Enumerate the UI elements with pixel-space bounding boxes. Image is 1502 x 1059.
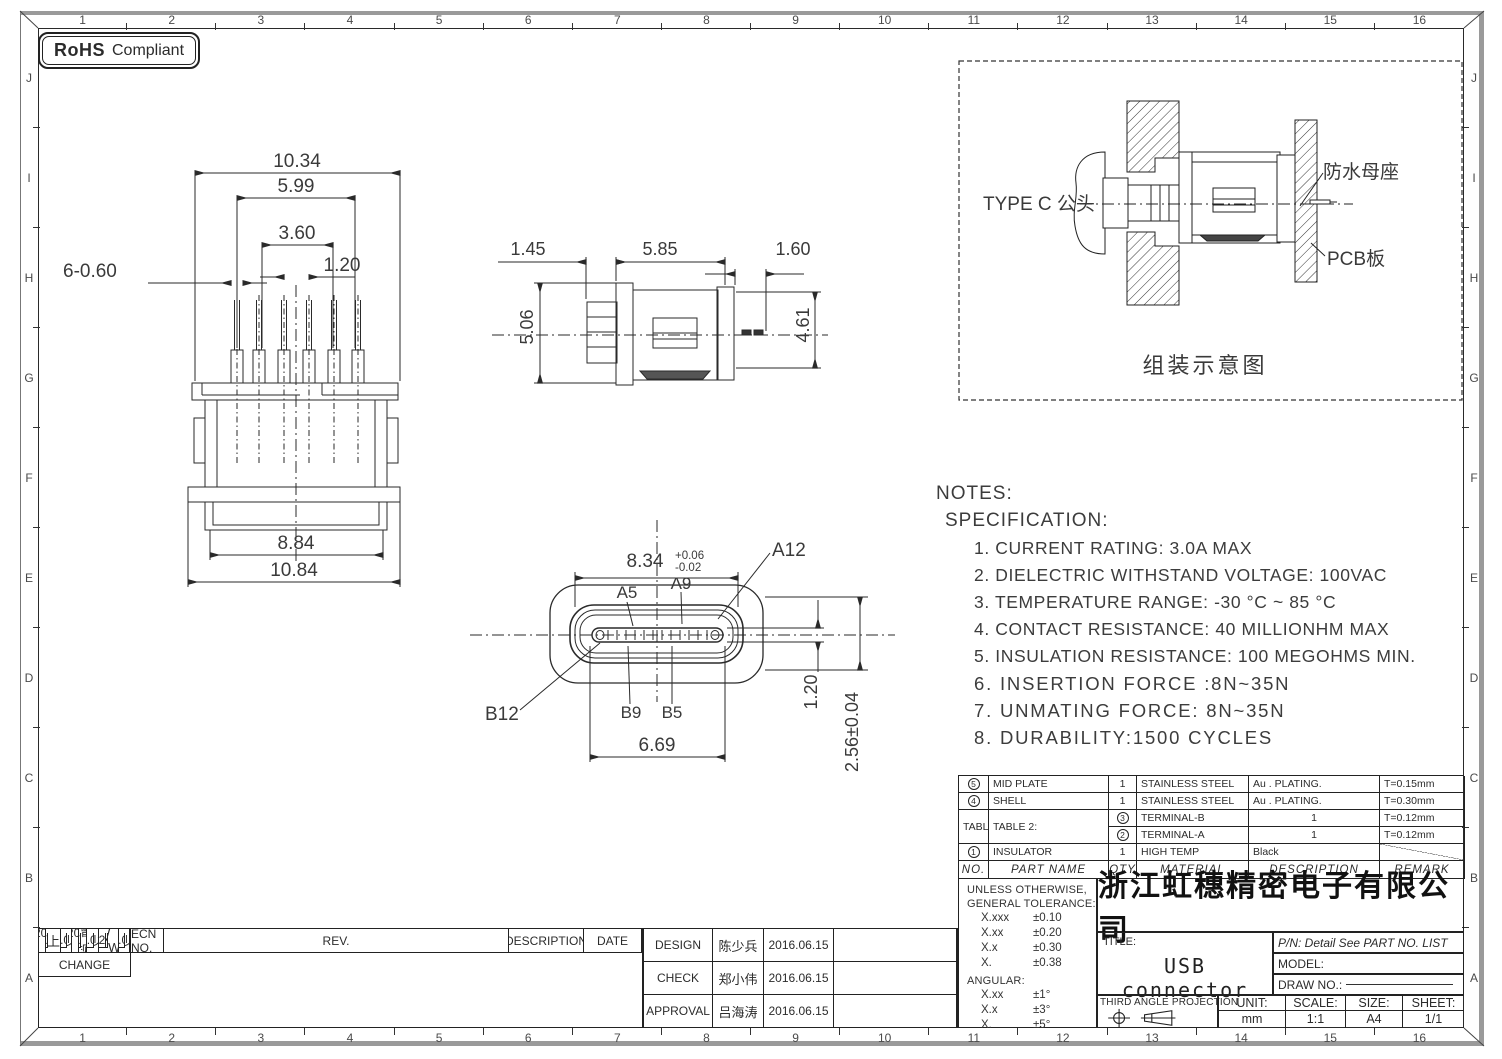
- ruler-number: 1: [38, 12, 127, 28]
- ruler-letter: E: [1464, 528, 1484, 628]
- part-name: TERMINAL-B: [1137, 810, 1249, 827]
- part-no: 3: [1109, 810, 1137, 827]
- part-material-merged: TABLE 2:: [959, 810, 989, 844]
- dim-side-height: 5.06: [517, 309, 537, 344]
- tolerance-row: X.x±0.30: [967, 942, 1096, 957]
- size-cell: SIZE: A4: [1345, 995, 1402, 1028]
- ruler-number: 6: [484, 1030, 573, 1046]
- ruler-number: 2: [127, 1030, 216, 1046]
- compliant-label: Compliant: [112, 42, 184, 60]
- parts-header-name: PART NAME: [989, 861, 1109, 879]
- part-remark: T=0.15mm: [1380, 776, 1465, 793]
- approval-date: 2016.06.15: [764, 995, 834, 1028]
- ruler-letter: H: [20, 228, 38, 328]
- rohs-badge: RoHS Compliant: [38, 32, 200, 69]
- tolerance-row: X.xxx±0.10: [967, 912, 1096, 927]
- projection-cell: THIRD ANGLE PROJECTION: [1097, 995, 1218, 1028]
- size-value: A4: [1346, 1011, 1402, 1027]
- ruler-number: 1: [38, 1030, 127, 1046]
- border-ruler-left: JIHGFEDCBA: [20, 28, 38, 1028]
- part-description: Black: [1249, 844, 1380, 861]
- drawing-sheet: 12345678910111213141516 1234567891011121…: [0, 0, 1502, 1059]
- dim-front-pitch: 1.20: [324, 255, 361, 276]
- tolerance-block: UNLESS OTHERWISE, GENERAL TOLERANCE: X.x…: [958, 878, 1097, 1028]
- ruler-number: 14: [1197, 12, 1286, 28]
- approval-empty-cell: [834, 929, 957, 962]
- dim-front-inner-span: 3.60: [279, 223, 316, 244]
- ruler-number: 9: [751, 12, 840, 28]
- dim-side-flange: 1.45: [510, 239, 545, 259]
- ruler-letter: F: [20, 428, 38, 528]
- approval-name: 郑小伟: [713, 962, 764, 995]
- tolerance-heading: GENERAL TOLERANCE:: [967, 898, 1096, 912]
- dim-side-tail: 1.60: [775, 239, 810, 259]
- approval-role: CHECK: [644, 962, 713, 995]
- ruler-number: 5: [395, 12, 484, 28]
- ruler-letter: H: [1464, 228, 1484, 328]
- ruler-number: 15: [1286, 12, 1375, 28]
- revision-ecn: JH2016-071: [72, 929, 79, 953]
- border-ruler-bottom: 12345678910111213141516: [38, 1030, 1464, 1046]
- ruler-number: 6: [484, 12, 573, 28]
- dim-face-width: 8.34: [627, 551, 664, 572]
- part-number-cell: P/N: Detail See PART NO. LIST: [1273, 932, 1464, 953]
- company-name: 浙江虹穗精密电子有限公司: [1097, 878, 1464, 932]
- ruler-number: 16: [1375, 12, 1464, 28]
- revision-header-ecn: ECN NO.: [131, 929, 164, 953]
- revision-header-rev: REV.: [164, 929, 509, 953]
- model-cell: MODEL:: [1273, 953, 1464, 974]
- part-remark: T=0.30mm: [1380, 793, 1465, 810]
- revision-ecn: JH2016-080: [39, 929, 46, 953]
- part-no: 5: [959, 776, 989, 793]
- part-qty: 1: [1249, 827, 1380, 844]
- approval-role: APPROVAL: [644, 995, 713, 1028]
- draw-no-blank-line: [1346, 984, 1453, 985]
- assembly-caption: 组装示意图: [1142, 353, 1267, 378]
- ruler-number: 5: [395, 1030, 484, 1046]
- draw-no-label: DRAW NO.:: [1278, 978, 1342, 992]
- ruler-number: 8: [662, 12, 751, 28]
- part-qty: 1: [1109, 793, 1137, 810]
- ruler-number: 4: [305, 1030, 394, 1046]
- ruler-letter: G: [20, 328, 38, 428]
- note-line: 2. DIELECTRIC WITHSTAND VOLTAGE: 100VAC: [936, 565, 1466, 592]
- sheet-cell: SHEET: 1/1: [1402, 995, 1464, 1028]
- part-description: Au . PLATING.: [1249, 776, 1380, 793]
- projection-label: THIRD ANGLE PROJECTION: [1100, 997, 1215, 1008]
- ruler-letter: C: [20, 728, 38, 828]
- face-view: 8.34 +0.06 -0.02 6.69 1.20 2.56±0.04 A5 …: [450, 512, 920, 812]
- ruler-number: 13: [1108, 12, 1197, 28]
- revision-description: NEW DRAWING: [108, 929, 119, 953]
- part-name: TERMINAL-A: [1137, 827, 1249, 844]
- side-view: 1.45 5.85 1.60 5.06 4.61: [490, 225, 830, 410]
- border-ruler-right: JIHGFEDCBA: [1464, 28, 1484, 1028]
- part-remark-slash: [1380, 844, 1465, 861]
- title-cell: TITLE: USB connector: [1097, 932, 1273, 995]
- dim-front-pin-width: 6-0.60: [63, 261, 117, 282]
- pin-label-a12: A12: [772, 540, 806, 561]
- ruler-letter: D: [1464, 628, 1484, 728]
- third-angle-projection-icon: [1100, 1008, 1200, 1028]
- ruler-number: 2: [127, 12, 216, 28]
- dim-face-tongue-thick: 1.20: [801, 674, 821, 709]
- dim-front-total-bottom: 10.84: [270, 560, 318, 581]
- tolerance-heading: UNLESS OTHERWISE,: [967, 884, 1096, 898]
- pin-label-b5: B5: [662, 703, 683, 722]
- approval-name: 陈少兵: [713, 929, 764, 962]
- ruler-number: 10: [840, 12, 929, 28]
- scale-cell: SCALE: 1:1: [1285, 995, 1345, 1028]
- title-label: TITLE:: [1103, 936, 1267, 948]
- ruler-number: 4: [305, 12, 394, 28]
- ruler-number: 10: [840, 1030, 929, 1046]
- ruler-number: 8: [662, 1030, 751, 1046]
- pin-label-b12: B12: [485, 704, 519, 725]
- revision-table: JH2016-080 X2 随工程图上升版本次 2016.06.15 陈少兵 J…: [38, 928, 643, 1028]
- draw-no-cell: DRAW NO.:: [1273, 974, 1464, 995]
- dim-face-tol-minus: -0.02: [675, 562, 701, 574]
- assembly-plug-label: TYPE C 公头: [983, 193, 1095, 215]
- part-no: 2: [1109, 827, 1137, 844]
- approval-role: DESIGN: [644, 929, 713, 962]
- part-qty: 1: [1109, 776, 1137, 793]
- unit-value: mm: [1219, 1011, 1285, 1027]
- approval-date: 2016.06.15: [764, 929, 834, 962]
- note-line: 8. DURABILITY:1500 CYCLES: [936, 727, 1466, 754]
- scale-value: 1:1: [1286, 1011, 1345, 1027]
- revision-header-change: CHANGE: [39, 953, 131, 977]
- sheet-label: SHEET:: [1403, 996, 1464, 1011]
- ruler-letter: A: [1464, 928, 1484, 1028]
- ruler-number: 7: [573, 1030, 662, 1046]
- ruler-number: 9: [751, 1030, 840, 1046]
- note-line: 3. TEMPERATURE RANGE: -30 °C ~ 85 °C: [936, 592, 1466, 619]
- pin-label-b9: B9: [621, 703, 642, 722]
- ruler-number: 3: [216, 12, 305, 28]
- dim-side-body-height: 4.61: [793, 307, 813, 342]
- ruler-letter: J: [20, 28, 38, 128]
- assembly-receptacle-label: 防水母座: [1323, 161, 1399, 183]
- dim-face-tongue-width: 6.69: [639, 735, 676, 756]
- angular-heading: ANGULAR:: [967, 975, 1096, 989]
- pin-label-a5: A5: [617, 583, 638, 602]
- ruler-letter: C: [1464, 728, 1484, 828]
- ruler-letter: D: [20, 628, 38, 728]
- size-label: SIZE:: [1346, 996, 1402, 1011]
- revision-ecn: 20151224001: [99, 933, 107, 948]
- note-line: 5. INSULATION RESISTANCE: 100 MEGOHMS MI…: [936, 646, 1466, 673]
- revision-description: 随工程图上升版本次: [48, 929, 60, 953]
- ruler-number: 15: [1286, 1030, 1375, 1046]
- approval-empty-cell: [834, 962, 957, 995]
- part-material: STAINLESS STEEL: [1137, 776, 1249, 793]
- notes-block: NOTES: SPECIFICATION: 1. CURRENT RATING:…: [936, 483, 1466, 754]
- tolerance-row: X.±0.38: [967, 957, 1096, 972]
- pin-label-a9: A9: [671, 574, 692, 593]
- approval-date: 2016.06.15: [764, 962, 834, 995]
- ruler-letter: G: [1464, 328, 1484, 428]
- note-line: 1. CURRENT RATING: 3.0A MAX: [936, 538, 1466, 565]
- assembly-diagram: TYPE C 公头 防水母座 PCB板 组装示意图: [955, 58, 1467, 403]
- ruler-letter: F: [1464, 428, 1484, 528]
- front-view: 10.34 5.99 3.60 1.20 6-0.60 8.84 10.84: [55, 145, 475, 620]
- ruler-number: 11: [929, 12, 1018, 28]
- ruler-letter: B: [1464, 828, 1484, 928]
- parts-header-no: NO.: [959, 861, 989, 879]
- dim-face-tol-plus: +0.06: [675, 550, 704, 562]
- part-description-merged: TABLE 2:: [989, 810, 1109, 844]
- part-remark: T=0.12mm: [1380, 810, 1465, 827]
- rohs-label: RoHS: [54, 40, 105, 61]
- part-qty: 1: [1109, 844, 1137, 861]
- revision-header-date: DATE: [584, 929, 642, 953]
- scale-label: SCALE:: [1286, 996, 1345, 1011]
- tolerance-row: X.±5°: [967, 1019, 1096, 1034]
- dim-front-pins-span: 5.99: [278, 176, 315, 197]
- ruler-letter: J: [1464, 28, 1484, 128]
- dim-front-total-top: 10.34: [273, 151, 321, 172]
- approval-name: 吕海涛: [713, 995, 764, 1028]
- dim-front-inner-bottom: 8.84: [278, 533, 315, 554]
- sheet-value: 1/1: [1403, 1011, 1464, 1027]
- ruler-number: 12: [1018, 12, 1107, 28]
- approval-table: DESIGN 陈少兵 2016.06.15 CHECK 郑小伟 2016.06.…: [643, 928, 958, 1028]
- ruler-number: 3: [216, 1030, 305, 1046]
- part-name: SHELL: [989, 793, 1109, 810]
- part-no: 4: [959, 793, 989, 810]
- part-remark: T=0.12mm: [1380, 827, 1465, 844]
- part-name: MID PLATE: [989, 776, 1109, 793]
- notes-subtitle: SPECIFICATION:: [936, 510, 1466, 538]
- ruler-number: 16: [1375, 1030, 1464, 1046]
- ruler-letter: I: [20, 128, 38, 228]
- tolerance-row: X.xx±1°: [967, 989, 1096, 1004]
- ruler-letter: I: [1464, 128, 1484, 228]
- tolerance-row: X.xx±0.20: [967, 927, 1096, 942]
- part-name: INSULATOR: [989, 844, 1109, 861]
- part-material: HIGH TEMP: [1137, 844, 1249, 861]
- dim-side-body: 5.85: [642, 239, 677, 259]
- ruler-number: 7: [573, 12, 662, 28]
- note-line: 7. UNMATING FORCE: 8N~35N: [936, 700, 1466, 727]
- tolerance-row: X.x±3°: [967, 1004, 1096, 1019]
- assembly-pcb-label: PCB板: [1327, 248, 1385, 270]
- ruler-letter: E: [20, 528, 38, 628]
- note-line: 4. CONTACT RESISTANCE: 40 MILLIONHM MAX: [936, 619, 1466, 646]
- unit-label: UNIT:: [1219, 996, 1285, 1011]
- note-line: 6. INSERTION FORCE :8N~35N: [936, 673, 1466, 700]
- border-ruler-top: 12345678910111213141516: [38, 12, 1464, 28]
- part-no: 1: [959, 844, 989, 861]
- unit-cell: UNIT: mm: [1218, 995, 1285, 1028]
- part-qty: 1: [1249, 810, 1380, 827]
- revision-change: 陈少兵: [125, 929, 130, 953]
- ruler-letter: B: [20, 828, 38, 928]
- part-description: Au . PLATING.: [1249, 793, 1380, 810]
- part-material: STAINLESS STEEL: [1137, 793, 1249, 810]
- revision-header-description: DESCRIPTION: [509, 929, 584, 953]
- ruler-letter: A: [20, 928, 38, 1028]
- dim-face-opening-height: 2.56±0.04: [842, 692, 862, 772]
- approval-empty-cell: [834, 995, 957, 1028]
- notes-title: NOTES:: [936, 483, 1466, 510]
